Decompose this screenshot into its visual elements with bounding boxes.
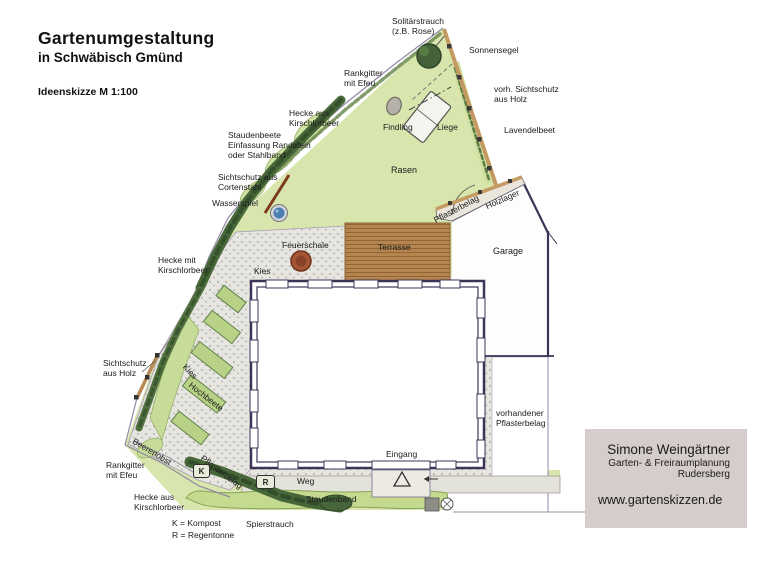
label-eingang: Eingang xyxy=(386,449,417,459)
label-findling: Findling xyxy=(383,122,413,132)
utility-box xyxy=(425,498,439,511)
label-rasen: Rasen xyxy=(391,165,417,176)
label-feuerschale: Feuerschale xyxy=(282,240,329,250)
plan-subtitle: in Schwäbisch Gmünd xyxy=(38,50,183,66)
label-rankgitter-top: Rankgitter mit Efeu xyxy=(344,68,383,88)
card-location: Rudersberg xyxy=(585,469,747,480)
label-weg: Weg xyxy=(297,476,314,486)
label-vorh-pflasterbelag: vorhandener Pflasterbelag xyxy=(496,408,546,428)
water-feature-symbol xyxy=(271,205,288,222)
label-hecke-kirschlorbeer-bottom: Hecke aus Kirschlorbeer xyxy=(134,492,184,512)
legend-kompost: K = Kompost xyxy=(172,518,221,528)
rain-barrel-symbol: R xyxy=(256,475,275,489)
label-sonnensegel: Sonnensegel xyxy=(469,45,519,55)
label-staudenband: Staudenband xyxy=(306,494,357,504)
garden-plan-page: { "header": { "title": "Gartenumgestaltu… xyxy=(0,0,775,567)
plan-title: Gartenumgestaltung xyxy=(38,28,215,49)
legend-regentonne: R = Regentonne xyxy=(172,530,234,540)
label-garage: Garage xyxy=(493,246,523,257)
card-name: Simone Weingärtner xyxy=(585,429,747,457)
label-solitaerstrauch: Solitärstrauch (z.B. Rose) xyxy=(392,16,444,36)
fire-bowl-symbol xyxy=(291,251,311,271)
label-kies-upper: Kies xyxy=(254,266,271,276)
label-sichtschutz-holz-left: Sichtschutz aus Holz xyxy=(103,358,146,378)
label-rankgitter-bottom: Rankgitter mit Efeu xyxy=(106,460,145,480)
label-vorh-sichtschutz: vorh. Sichtschutz aus Holz xyxy=(494,84,559,104)
scale-note: Ideenskizze M 1:100 xyxy=(38,86,138,99)
house xyxy=(250,280,485,469)
label-terrasse: Terrasse xyxy=(378,242,411,252)
business-card: Simone Weingärtner Garten- & Freiraumpla… xyxy=(585,429,747,528)
card-profession: Garten- & Freiraumplanung xyxy=(585,457,747,469)
label-staudenbeete: Staudenbeete Einfassung Randstein oder S… xyxy=(228,130,311,161)
label-spierstrauch: Spierstrauch xyxy=(246,519,294,529)
label-lavendelbeet: Lavendelbeet xyxy=(504,125,555,135)
house-door xyxy=(372,461,430,469)
card-website: www.gartenskizzen.de xyxy=(585,480,747,507)
label-liege: Liege xyxy=(437,122,458,132)
compost-symbol: K xyxy=(193,464,210,478)
label-sichtschutz-cortenstahl: Sichtschutz aus Cortenstahl xyxy=(218,172,278,192)
label-wasserspiel: Wasserspiel xyxy=(212,198,258,208)
label-hecke-kirschlorbeer-mid: Hecke mit Kirschlorbeer xyxy=(158,255,208,275)
label-hecke-kirschlorbeer-top: Hecke aus Kirschlorbeer xyxy=(289,108,339,128)
